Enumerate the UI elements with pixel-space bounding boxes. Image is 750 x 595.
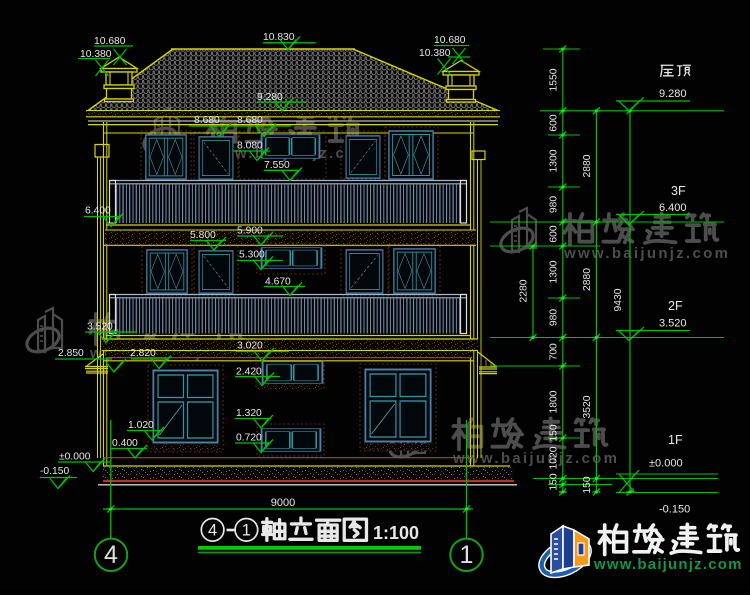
svg-text:±0.000: ±0.000 xyxy=(59,452,91,463)
svg-text:6.400: 6.400 xyxy=(85,206,111,217)
svg-text:1550: 1550 xyxy=(549,68,560,91)
svg-text:2880: 2880 xyxy=(582,154,593,177)
svg-text:1.020: 1.020 xyxy=(128,420,154,431)
svg-text:1.320: 1.320 xyxy=(236,408,262,419)
svg-text:3520: 3520 xyxy=(582,395,593,418)
svg-text:1F: 1F xyxy=(668,433,683,447)
svg-text:1300: 1300 xyxy=(549,260,560,283)
svg-text:9430: 9430 xyxy=(613,288,624,311)
svg-text:±0.000: ±0.000 xyxy=(649,458,683,470)
svg-text:1: 1 xyxy=(242,522,251,540)
svg-text:www.baijunjz.com: www.baijunjz.com xyxy=(593,556,743,573)
svg-text:7.550: 7.550 xyxy=(264,160,290,171)
svg-text:2.850: 2.850 xyxy=(58,348,84,359)
svg-text:www.baijunjz.com: www.baijunjz.com xyxy=(563,245,730,262)
svg-text:-0.150: -0.150 xyxy=(659,504,690,516)
svg-text:2880: 2880 xyxy=(582,268,593,291)
svg-text:150: 150 xyxy=(549,473,560,490)
svg-text:8.680: 8.680 xyxy=(194,115,220,126)
svg-text:600: 600 xyxy=(549,114,560,131)
svg-text:980: 980 xyxy=(549,196,560,213)
svg-text:980: 980 xyxy=(549,309,560,326)
svg-text:3.520: 3.520 xyxy=(87,322,113,333)
svg-text:5.800: 5.800 xyxy=(190,230,216,241)
svg-text:10.830: 10.830 xyxy=(263,32,295,43)
svg-text:1300: 1300 xyxy=(549,149,560,172)
svg-text:3.520: 3.520 xyxy=(659,318,687,330)
svg-text:6.400: 6.400 xyxy=(659,202,687,214)
svg-text:1020: 1020 xyxy=(549,446,560,469)
svg-text:1:100: 1:100 xyxy=(373,523,419,543)
svg-text:150: 150 xyxy=(549,424,560,441)
svg-text:9.280: 9.280 xyxy=(659,88,687,100)
svg-text:3F: 3F xyxy=(671,184,686,198)
svg-text:4: 4 xyxy=(208,522,217,540)
svg-text:0.400: 0.400 xyxy=(112,438,138,449)
svg-text:-0.150: -0.150 xyxy=(40,466,69,477)
svg-text:1800: 1800 xyxy=(549,390,560,413)
svg-text:5.300: 5.300 xyxy=(239,250,265,261)
svg-text:1: 1 xyxy=(460,541,474,569)
svg-text:150: 150 xyxy=(582,476,593,493)
svg-text:2280: 2280 xyxy=(519,279,530,302)
svg-text:2.820: 2.820 xyxy=(130,348,156,359)
svg-text:700: 700 xyxy=(549,343,560,360)
svg-text:3.020: 3.020 xyxy=(237,341,263,352)
svg-text:9000: 9000 xyxy=(271,497,295,509)
svg-text:8.080: 8.080 xyxy=(237,141,263,152)
svg-text:5.900: 5.900 xyxy=(237,226,263,237)
svg-text:10.380: 10.380 xyxy=(419,48,451,59)
svg-text:600: 600 xyxy=(549,225,560,242)
svg-text:10.680: 10.680 xyxy=(434,35,466,46)
svg-text:8.680: 8.680 xyxy=(237,115,263,126)
svg-text:4: 4 xyxy=(104,541,118,569)
svg-text:0.720: 0.720 xyxy=(236,433,262,444)
svg-text:2F: 2F xyxy=(668,299,683,313)
